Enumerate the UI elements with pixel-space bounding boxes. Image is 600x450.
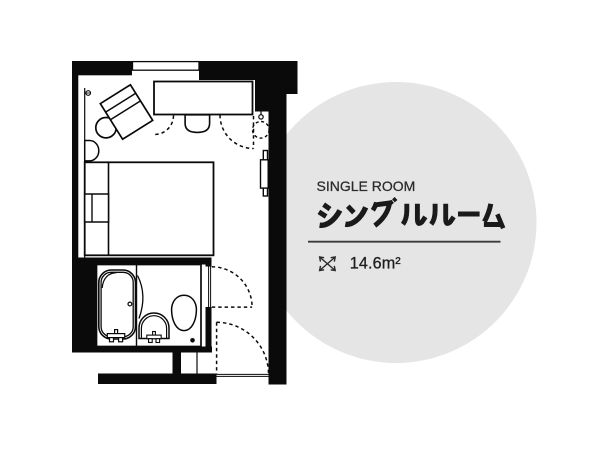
svg-text:SINGLE ROOM: SINGLE ROOM	[317, 178, 416, 194]
svg-text:14.6m²: 14.6m²	[350, 255, 401, 273]
